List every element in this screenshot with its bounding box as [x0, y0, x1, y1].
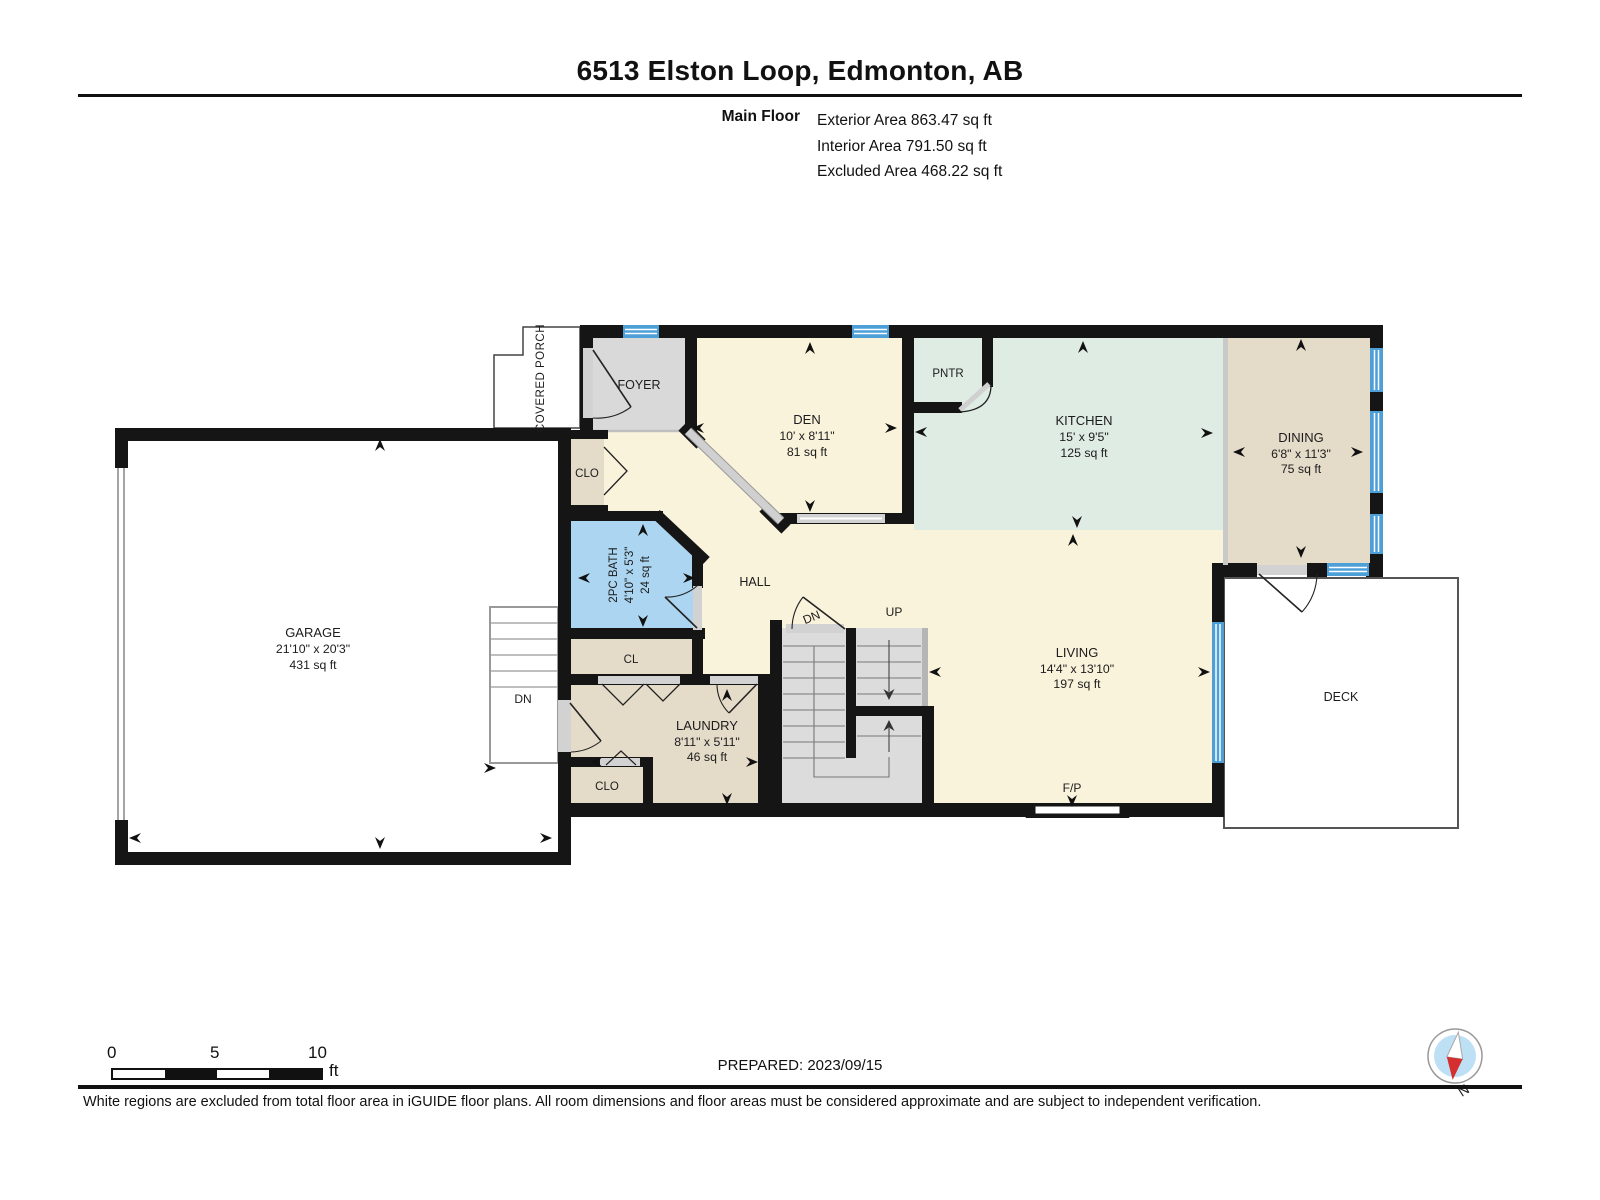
floor-plan-drawing: COVERED PORCH FOYER CLO DEN 10' x 8'11" … — [0, 0, 1600, 1200]
living-label: LIVING — [1056, 645, 1099, 660]
laundry-label: LAUNDRY — [676, 718, 738, 733]
kitchen-area: 125 sq ft — [1060, 446, 1108, 460]
dining-dims: 6'8" x 11'3" — [1271, 447, 1331, 461]
garage-door — [115, 468, 128, 820]
laundry-dims: 8'11" x 5'11" — [674, 735, 740, 749]
deck-label: DECK — [1324, 690, 1359, 704]
den-label: DEN — [793, 412, 820, 427]
exterior-stair-dn-label: DN — [514, 692, 531, 706]
foyer-label: FOYER — [617, 378, 660, 392]
kitchen-dims: 15' x 9'5" — [1059, 430, 1108, 444]
clo-laundry-label: CLO — [595, 781, 619, 793]
living-dims: 14'4" x 13'10" — [1040, 662, 1114, 676]
footer-divider — [78, 1085, 1522, 1089]
bath-dims: 4'10" x 5'3" — [624, 547, 636, 604]
clo-foyer-label: CLO — [575, 468, 599, 480]
covered-porch-label: COVERED PORCH — [535, 324, 547, 432]
prepared-date: PREPARED: 2023/09/15 — [0, 1057, 1600, 1074]
dining-area: 75 sq ft — [1281, 462, 1322, 476]
garage-label: GARAGE — [285, 625, 341, 640]
hall-label: HALL — [739, 575, 770, 589]
kitchen-label: KITCHEN — [1055, 413, 1112, 428]
compass-n-label: N — [1455, 1081, 1472, 1100]
bath-area: 24 sq ft — [640, 555, 652, 594]
bath-label: 2PC BATH — [608, 547, 620, 602]
garage-dims: 21'10" x 20'3" — [276, 642, 350, 656]
pantry-label: PNTR — [932, 368, 963, 380]
exterior-stair — [490, 607, 558, 763]
floor-plan-page: 6513 Elston Loop, Edmonton, AB Main Floo… — [0, 0, 1600, 1200]
fireplace — [1018, 803, 1137, 818]
stair-up-label: UP — [886, 605, 903, 619]
disclaimer-text: White regions are excluded from total fl… — [83, 1094, 1261, 1110]
den-area: 81 sq ft — [787, 445, 828, 459]
den-dims: 10' x 8'11" — [779, 429, 834, 443]
fireplace-label: F/P — [1063, 781, 1082, 795]
cl-label: CL — [624, 654, 639, 666]
garage-area: 431 sq ft — [289, 658, 337, 672]
dining-label: DINING — [1278, 430, 1324, 445]
stair-handrail — [922, 628, 928, 706]
living-area: 197 sq ft — [1053, 677, 1101, 691]
laundry-area: 46 sq ft — [687, 750, 728, 764]
